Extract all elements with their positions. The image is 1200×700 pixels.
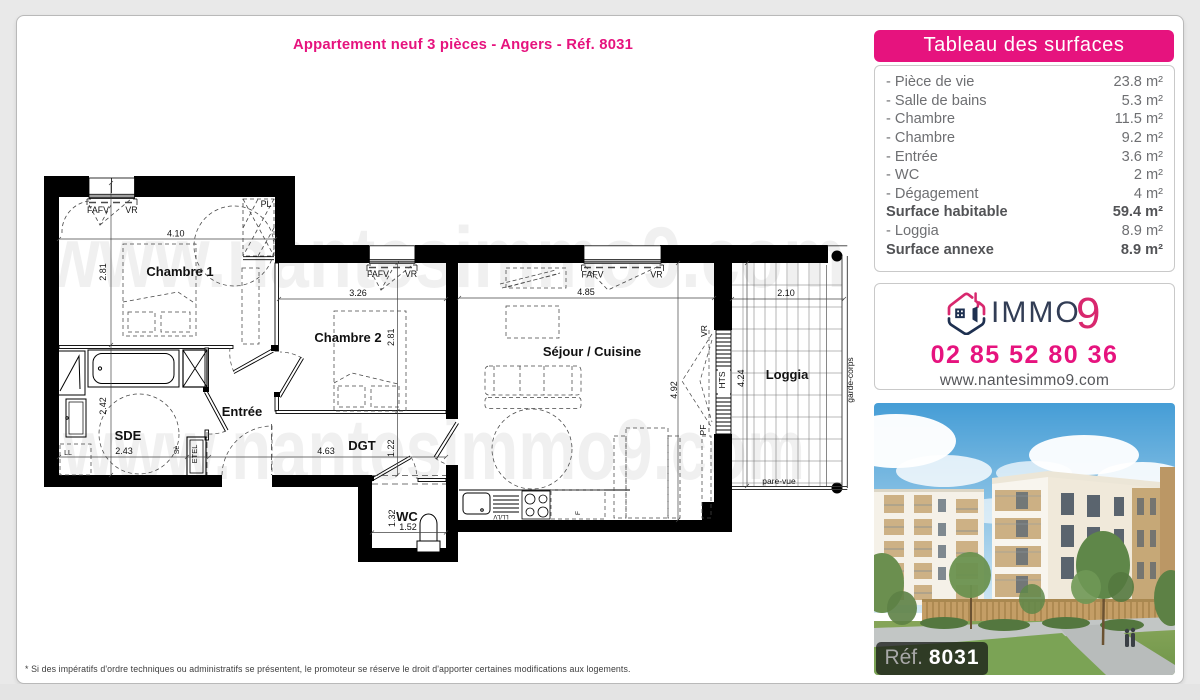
svg-text:garde-corps: garde-corps: [845, 357, 855, 402]
svg-text:FAFV: FAFV: [367, 269, 389, 279]
svg-text:pare-vue: pare-vue: [762, 476, 796, 486]
svg-text:2.81: 2.81: [386, 328, 396, 346]
svg-text:1.22: 1.22: [386, 439, 396, 457]
svg-text:4.85: 4.85: [577, 287, 595, 297]
svg-text:ETEL: ETEL: [190, 445, 199, 464]
svg-text:4.24: 4.24: [736, 369, 746, 387]
svg-text:WC: WC: [396, 509, 418, 524]
svg-text:2.42: 2.42: [98, 397, 108, 415]
svg-text:VR: VR: [405, 269, 417, 279]
svg-text:2.81: 2.81: [98, 263, 108, 281]
svg-text:4.10: 4.10: [167, 229, 185, 239]
svg-text:Loggia: Loggia: [766, 367, 809, 382]
svg-text:FAFV: FAFV: [87, 205, 109, 215]
svg-text:SDE: SDE: [115, 428, 142, 443]
svg-text:Séjour / Cuisine: Séjour / Cuisine: [543, 344, 641, 359]
svg-text:9: 9: [1076, 291, 1100, 335]
svg-text:VR: VR: [650, 270, 662, 280]
svg-text:2.43: 2.43: [115, 446, 133, 456]
svg-text:Chambre 2: Chambre 2: [314, 330, 381, 345]
svg-text:2.10: 2.10: [777, 288, 795, 298]
svg-text:LL/LV: LL/LV: [493, 513, 508, 519]
svg-text:PF: PF: [698, 425, 708, 436]
svg-text:DGT: DGT: [348, 438, 376, 453]
svg-text:FAFV: FAFV: [582, 270, 604, 280]
svg-text:LL: LL: [64, 450, 72, 457]
svg-text:4.92: 4.92: [669, 381, 679, 399]
svg-text:4.63: 4.63: [317, 446, 335, 456]
svg-text:3.26: 3.26: [349, 288, 367, 298]
svg-text:Entrée: Entrée: [222, 404, 262, 419]
svg-text:F: F: [575, 511, 582, 515]
svg-text:IMMO: IMMO: [991, 296, 1081, 329]
svg-text:Chambre 1: Chambre 1: [146, 264, 213, 279]
svg-text:HTS: HTS: [717, 371, 727, 388]
svg-text:VR: VR: [125, 205, 137, 215]
svg-text:VR: VR: [699, 325, 709, 337]
svg-text:Sè: Sè: [174, 446, 181, 455]
svg-text:PL: PL: [261, 199, 272, 209]
